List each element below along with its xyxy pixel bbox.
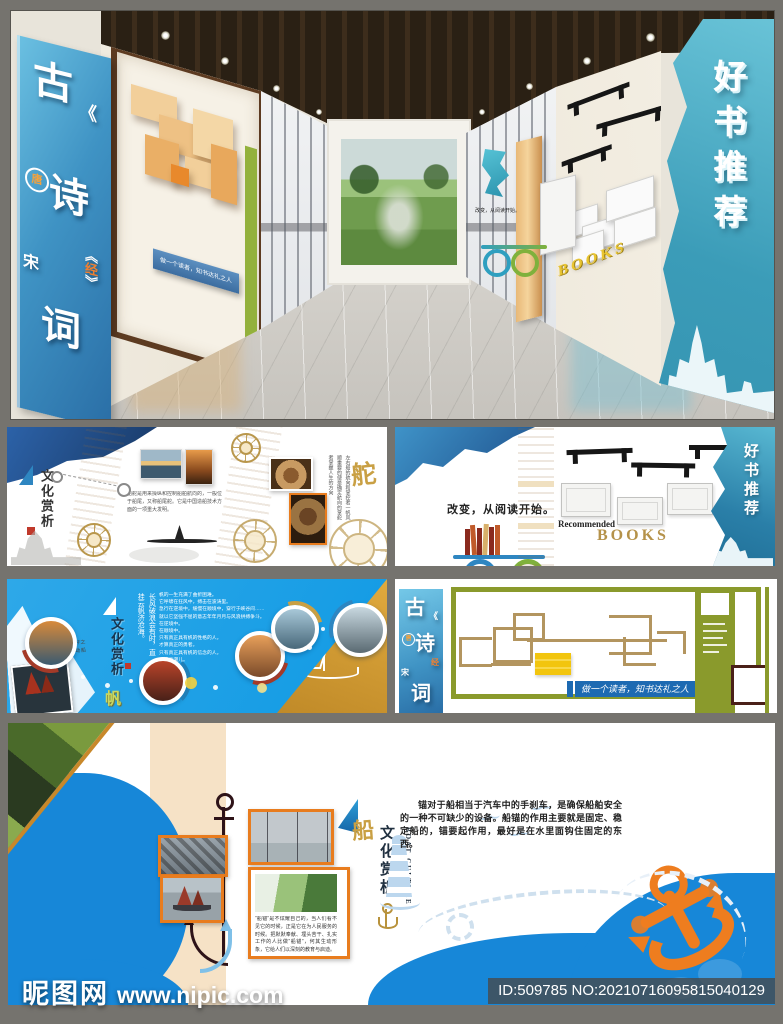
caption-box: “船锚”是不炫耀自己的，当人们看不见它的时候，正是它在为人民服务的时候。把默默奉… — [248, 867, 350, 959]
red-sail — [192, 890, 204, 906]
end-wall — [329, 121, 469, 283]
path-dot-yellow — [185, 677, 197, 689]
jing-label: 经 — [431, 657, 439, 668]
sail-icon — [103, 597, 116, 615]
fisher-boat-silhouette — [147, 539, 217, 543]
poetry-flat-panel: 古 《 唐 诗 宋 经 词 做一个读者，知书达礼之人 — [395, 579, 777, 713]
char-song: 宋 — [23, 246, 39, 274]
red-sail — [40, 674, 55, 693]
books-stack-icon — [465, 525, 509, 555]
sail-icon — [19, 465, 33, 485]
path-dot — [321, 627, 325, 631]
path-dot — [81, 675, 85, 679]
path-bead — [51, 471, 63, 483]
watermark: 昵图网www.nipic.com — [22, 972, 284, 1011]
tang-badge: 唐 — [402, 633, 415, 646]
sunset-photo — [185, 449, 213, 485]
poetry-wall-panel: 古 《 唐 诗 宋 《经》 词 — [17, 35, 111, 420]
red-seal-icon — [125, 663, 131, 669]
sunset-sea-photo — [140, 449, 182, 479]
gray-shelf — [561, 483, 611, 517]
wheel-photo — [269, 457, 313, 491]
helm-wheel-icon — [231, 433, 261, 463]
book-spine — [465, 529, 470, 555]
pipe-loop-blue — [463, 559, 497, 566]
wave-stroke — [380, 895, 420, 910]
photo-badge — [25, 617, 77, 669]
rudder-panel: 文化赏析 船舵是用来操纵和控制船舶航向的，一般位于船尾，又称船尾舵。它是中国造船… — [7, 427, 387, 566]
olive-band — [695, 587, 735, 713]
wood-shelf — [211, 144, 237, 206]
ceiling-lamp — [646, 33, 655, 42]
anchor-ring-icon — [216, 793, 234, 811]
char-ci: 词 — [411, 677, 431, 706]
blue-arrow-curve — [200, 929, 232, 973]
path-dot-yellow — [257, 683, 267, 693]
ceiling-lamp — [273, 85, 280, 92]
quote-mark: 《 — [429, 609, 438, 622]
sailboats-photo — [248, 809, 334, 865]
harbor-photo — [158, 835, 228, 877]
red-sail — [23, 671, 41, 695]
tang-badge: 唐 — [25, 165, 49, 195]
white-shelf-unit — [540, 175, 576, 256]
shelf-diagram-line — [491, 663, 531, 666]
photo-badge — [333, 603, 387, 657]
rudder-body-text: 船舵是用来操纵和控制船舶航向的，一般位于船尾，又称船尾舵。它是中国造船技术方面的… — [127, 491, 222, 519]
brown-outlined-square — [731, 665, 769, 705]
gray-shelf — [617, 497, 663, 525]
red-sail — [177, 886, 192, 906]
park-view — [341, 139, 457, 265]
shelf-diagram-line — [657, 631, 686, 654]
pipe-loop-blue — [483, 249, 511, 277]
poetry-banner: 做一个读者，知书达礼之人 — [575, 681, 695, 697]
ceiling-lamp — [479, 109, 485, 115]
char-ci: 词 — [41, 291, 81, 359]
anchor-caption-text: “船锚”是不炫耀自己的，当人们看不见它的时候，正是它在为人民服务的时候。把默默奉… — [255, 916, 337, 952]
line-boat-hull — [301, 667, 359, 679]
duo-character: 舵 — [349, 454, 378, 492]
char-gu: 古 — [33, 45, 73, 113]
line-boat-mast — [323, 627, 325, 671]
char-gu: 古 — [405, 591, 425, 620]
quote-mark: 《 — [79, 96, 97, 126]
poetry-strip: 古 《 唐 诗 宋 经 词 — [399, 589, 443, 713]
books-label: BOOKS — [597, 527, 669, 545]
rope-loop — [446, 913, 474, 941]
banner-tab — [567, 681, 573, 697]
path-bead — [117, 483, 131, 497]
anchor-body-text: 锚对于船相当于汽车中的手刹车，是确保船舶安全的一种不可缺少的设备。船锚的作用主要… — [400, 799, 622, 871]
olive-thin-bar — [765, 587, 769, 713]
shelf-diagram-line — [459, 637, 492, 667]
wood-pillar — [516, 136, 542, 322]
book-wall-title-small: 好书推荐 — [740, 443, 761, 549]
char-shi: 诗 — [49, 159, 89, 227]
ceiling-lamp — [161, 31, 170, 40]
jing-label: 《经》 — [81, 247, 100, 322]
boat-character: 船 — [351, 812, 375, 845]
corridor-render: 做一个读者，知书达礼之人 古 《 唐 诗 宋 《经》 词 — [10, 10, 775, 420]
book-wall-title: 好书推荐 — [702, 59, 750, 331]
mini-anchor-arms — [378, 917, 398, 929]
char-song: 宋 — [401, 667, 409, 678]
shelf-diagram-line — [623, 637, 656, 666]
ceiling-lamp — [583, 57, 591, 65]
rudder-side-lines: 左右船的航向和掌控者一帆风顺重要的便是确定航向的掌舵者掌握人生的方向 — [325, 455, 351, 521]
book-spine — [489, 527, 494, 555]
stock-id-bar: ID:509785 NO:20210716095815040129 — [488, 978, 775, 1004]
ceiling-lamp — [221, 57, 229, 65]
anchor-panel: “船锚”是不炫耀自己的，当人们看不见它的时候，正是它在为人民服务的时候。把默默奉… — [8, 723, 775, 1005]
compass-icon — [329, 519, 387, 566]
wood-plank-vertical — [518, 427, 554, 566]
char-shi: 诗 — [415, 627, 435, 656]
stock-image-preview: 做一个读者，知书达礼之人 古 《 唐 诗 宋 《经》 词 — [0, 0, 783, 1024]
helm-wheel-icon — [77, 523, 111, 557]
gray-shelf — [667, 483, 713, 515]
watermark-site: 昵图网 — [22, 979, 109, 1009]
sail-panel: “帆”，张挂于桅杆之上，借风力推动船破浪前行。 文化赏析 帆 长风破浪会有时，直… — [7, 579, 387, 713]
category-title: 文化赏析 — [107, 617, 126, 689]
hull — [173, 905, 211, 911]
fan-character: 帆 — [105, 685, 121, 709]
ceiling-lamp — [526, 83, 533, 90]
books-panel: 改变，从阅读开始。 Recommended BOOKS 好书推荐 — [395, 427, 775, 566]
wall-slogan-small: 改变，从阅读开始。 — [475, 207, 521, 215]
wheel-photo-framed — [289, 493, 327, 545]
watermark-url: www.nipic.com — [117, 982, 284, 1008]
path-dot — [307, 645, 312, 650]
path-dot — [213, 685, 218, 690]
pipe-loop-green — [511, 249, 539, 277]
green-stripe — [245, 146, 257, 364]
pipe-squiggle — [481, 245, 547, 249]
ceiling-lamp — [316, 109, 322, 115]
helm-wheel-icon — [233, 519, 277, 563]
book-spine — [477, 528, 482, 555]
roof-bracket-icon — [566, 448, 633, 481]
path-dot — [129, 679, 133, 683]
plank-band — [518, 481, 554, 487]
shelf-diagram-line — [513, 613, 545, 641]
fisherman-silhouette — [175, 525, 184, 539]
green-river-photo — [255, 874, 337, 912]
book-spine — [482, 524, 489, 555]
band-white-square — [701, 593, 729, 615]
yellow-box — [535, 653, 571, 675]
book-spine — [495, 525, 500, 555]
band-text-lines — [695, 623, 735, 653]
photo-badge — [139, 657, 187, 705]
sail-quote: 长风破浪会有时，直挂云帆济沧海。 — [135, 593, 157, 659]
red-junk-photo — [160, 875, 224, 923]
book-spine — [470, 525, 477, 555]
plank-band — [518, 523, 554, 529]
cloud-shape — [129, 547, 199, 563]
path-dot — [105, 683, 110, 688]
